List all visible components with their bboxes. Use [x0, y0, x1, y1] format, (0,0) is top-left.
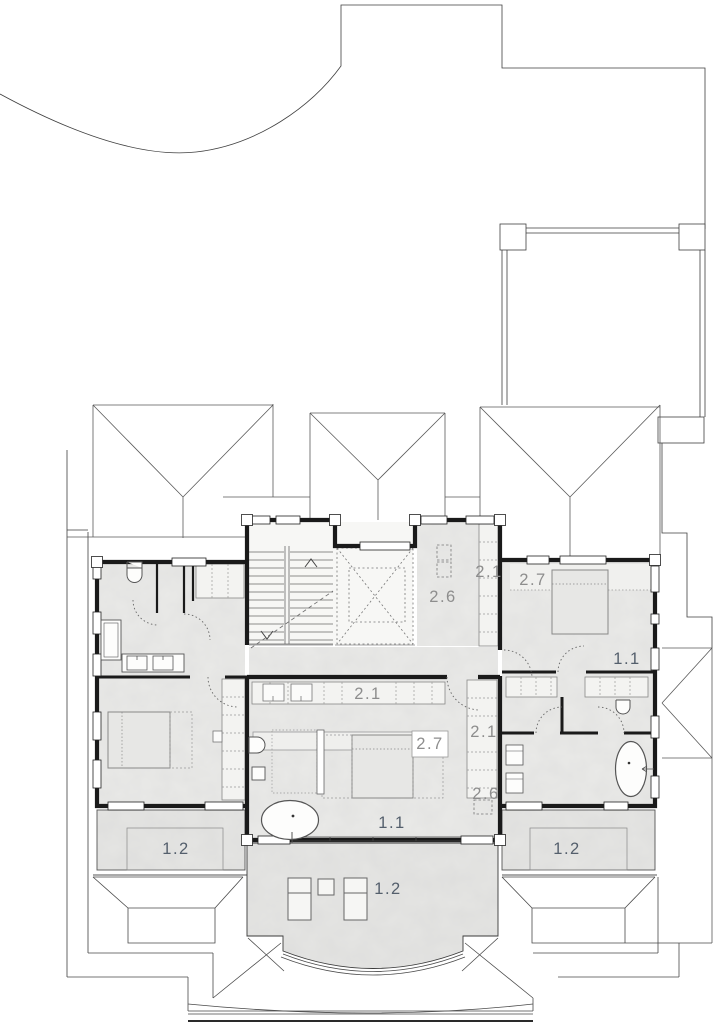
site-arc-driveway: [0, 5, 705, 229]
roof-center-hip: [310, 413, 445, 520]
lounge-chair: [344, 893, 367, 920]
under-balcony-left-roof: [93, 877, 243, 943]
bathtub-drain: [292, 815, 295, 818]
wardrobe-left-bedroom: [222, 679, 245, 800]
floor-fills: [0, 0, 720, 1026]
toilet-right-wing: [616, 700, 630, 714]
room-label-balcony-left: 1.2: [162, 840, 189, 858]
lounge-chair: [288, 893, 311, 920]
window: [108, 802, 144, 810]
window: [560, 556, 606, 564]
bath-shelf: [506, 745, 523, 765]
pergola-post: [679, 224, 705, 250]
bed-left-bedroom: [108, 712, 170, 768]
window: [651, 614, 659, 624]
lounge-chair: [288, 878, 311, 893]
pergola-post: [500, 224, 526, 250]
room-label-master-bedroom: 1.1: [378, 814, 405, 832]
chimney-box: [658, 417, 704, 443]
window: [205, 802, 243, 810]
floor-plan-canvas: 2.6 2.1 2.7 1.1 2.1 2.1 2.7 2.6 1.1 1.2 …: [0, 0, 720, 1026]
bathtub-master: [262, 801, 319, 840]
stone-texture-overlay: [0, 0, 720, 1026]
room-label-terrace: 1.2: [374, 880, 401, 898]
room-label-closet-east: 2.1: [470, 723, 497, 741]
corner-pillar: [495, 515, 506, 526]
room-label-bed-ne: 2.7: [519, 571, 546, 589]
room-label-laundry: 2.6: [429, 588, 456, 606]
ground-terrace-front-arc: [188, 1004, 533, 1013]
under-balcony-right-roof: [502, 877, 712, 943]
window: [360, 542, 410, 550]
window: [93, 760, 101, 788]
window: [461, 836, 493, 844]
window: [276, 516, 300, 524]
site-right-steps: [662, 443, 712, 648]
window: [604, 802, 628, 810]
window: [527, 556, 549, 564]
floor-plan-drawing: 2.6 2.1 2.7 1.1 2.1 2.1 2.7 2.6 1.1 1.2 …: [0, 0, 720, 1026]
window: [421, 516, 447, 524]
room-label-shaft: 2.6: [472, 785, 499, 803]
roof-right-hip: [480, 405, 660, 558]
lounge-chair: [344, 878, 367, 893]
window: [506, 802, 542, 810]
site-left-edge-lines: [67, 450, 88, 977]
dresser-master: [263, 684, 284, 701]
window: [93, 712, 101, 740]
window: [250, 516, 270, 524]
corner-pillar: [410, 515, 421, 526]
room-label-wardrobe-master: 2.1: [354, 685, 381, 703]
bed-right-bedroom: [552, 570, 608, 634]
room-label-bedroom-ne: 1.1: [613, 650, 640, 668]
bed-master: [352, 735, 413, 798]
bathtub-right: [616, 742, 647, 797]
closet-right-corridor-a: [506, 677, 557, 697]
room-label-closet-top: 2.1: [475, 563, 502, 581]
divider-wall-master-bath: [317, 730, 324, 794]
wardrobe-knob-box: [213, 731, 222, 742]
window: [93, 654, 101, 676]
bath-shelf: [506, 773, 523, 793]
window: [651, 566, 659, 592]
bathtub-drain: [628, 762, 631, 765]
corner-pillar: [330, 515, 341, 526]
corner-pillar: [242, 515, 253, 526]
toilet-master: [249, 737, 265, 753]
corner-pillar: [242, 835, 253, 846]
room-label-balcony-right: 1.2: [553, 840, 580, 858]
bay-roof-right: [662, 648, 712, 943]
window: [651, 648, 659, 670]
side-table: [318, 879, 334, 895]
closet-bathroom-left: [196, 564, 244, 598]
floor-stair-hall: [249, 522, 413, 645]
window: [466, 516, 494, 524]
dresser-master: [291, 684, 312, 701]
corner-pillar: [495, 835, 506, 846]
window: [93, 612, 101, 634]
corner-pillar: [92, 557, 103, 568]
corner-pillar: [650, 555, 661, 566]
closet-right-corridor-b: [585, 677, 648, 697]
window: [651, 716, 659, 738]
bidet-tray: [252, 767, 265, 780]
window: [172, 558, 206, 566]
room-label-bed-master: 2.7: [416, 735, 443, 753]
window: [651, 776, 659, 798]
